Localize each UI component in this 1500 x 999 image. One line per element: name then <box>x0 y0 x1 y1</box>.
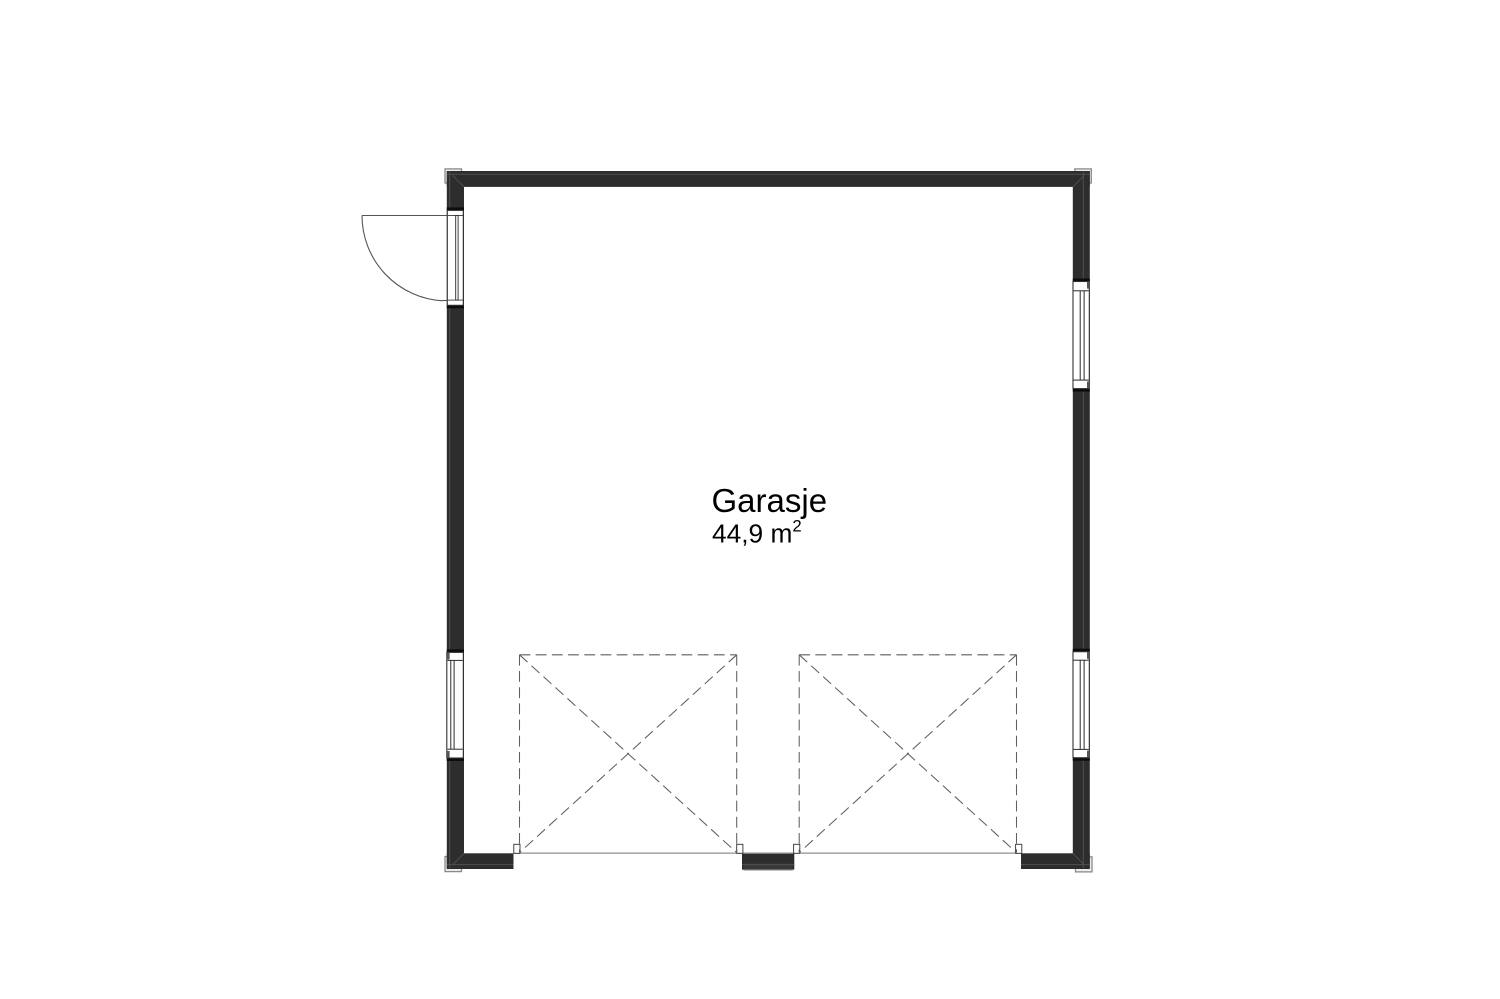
svg-text:44,9 m2: 44,9 m2 <box>712 517 802 549</box>
svg-text:Garasje: Garasje <box>712 482 828 519</box>
